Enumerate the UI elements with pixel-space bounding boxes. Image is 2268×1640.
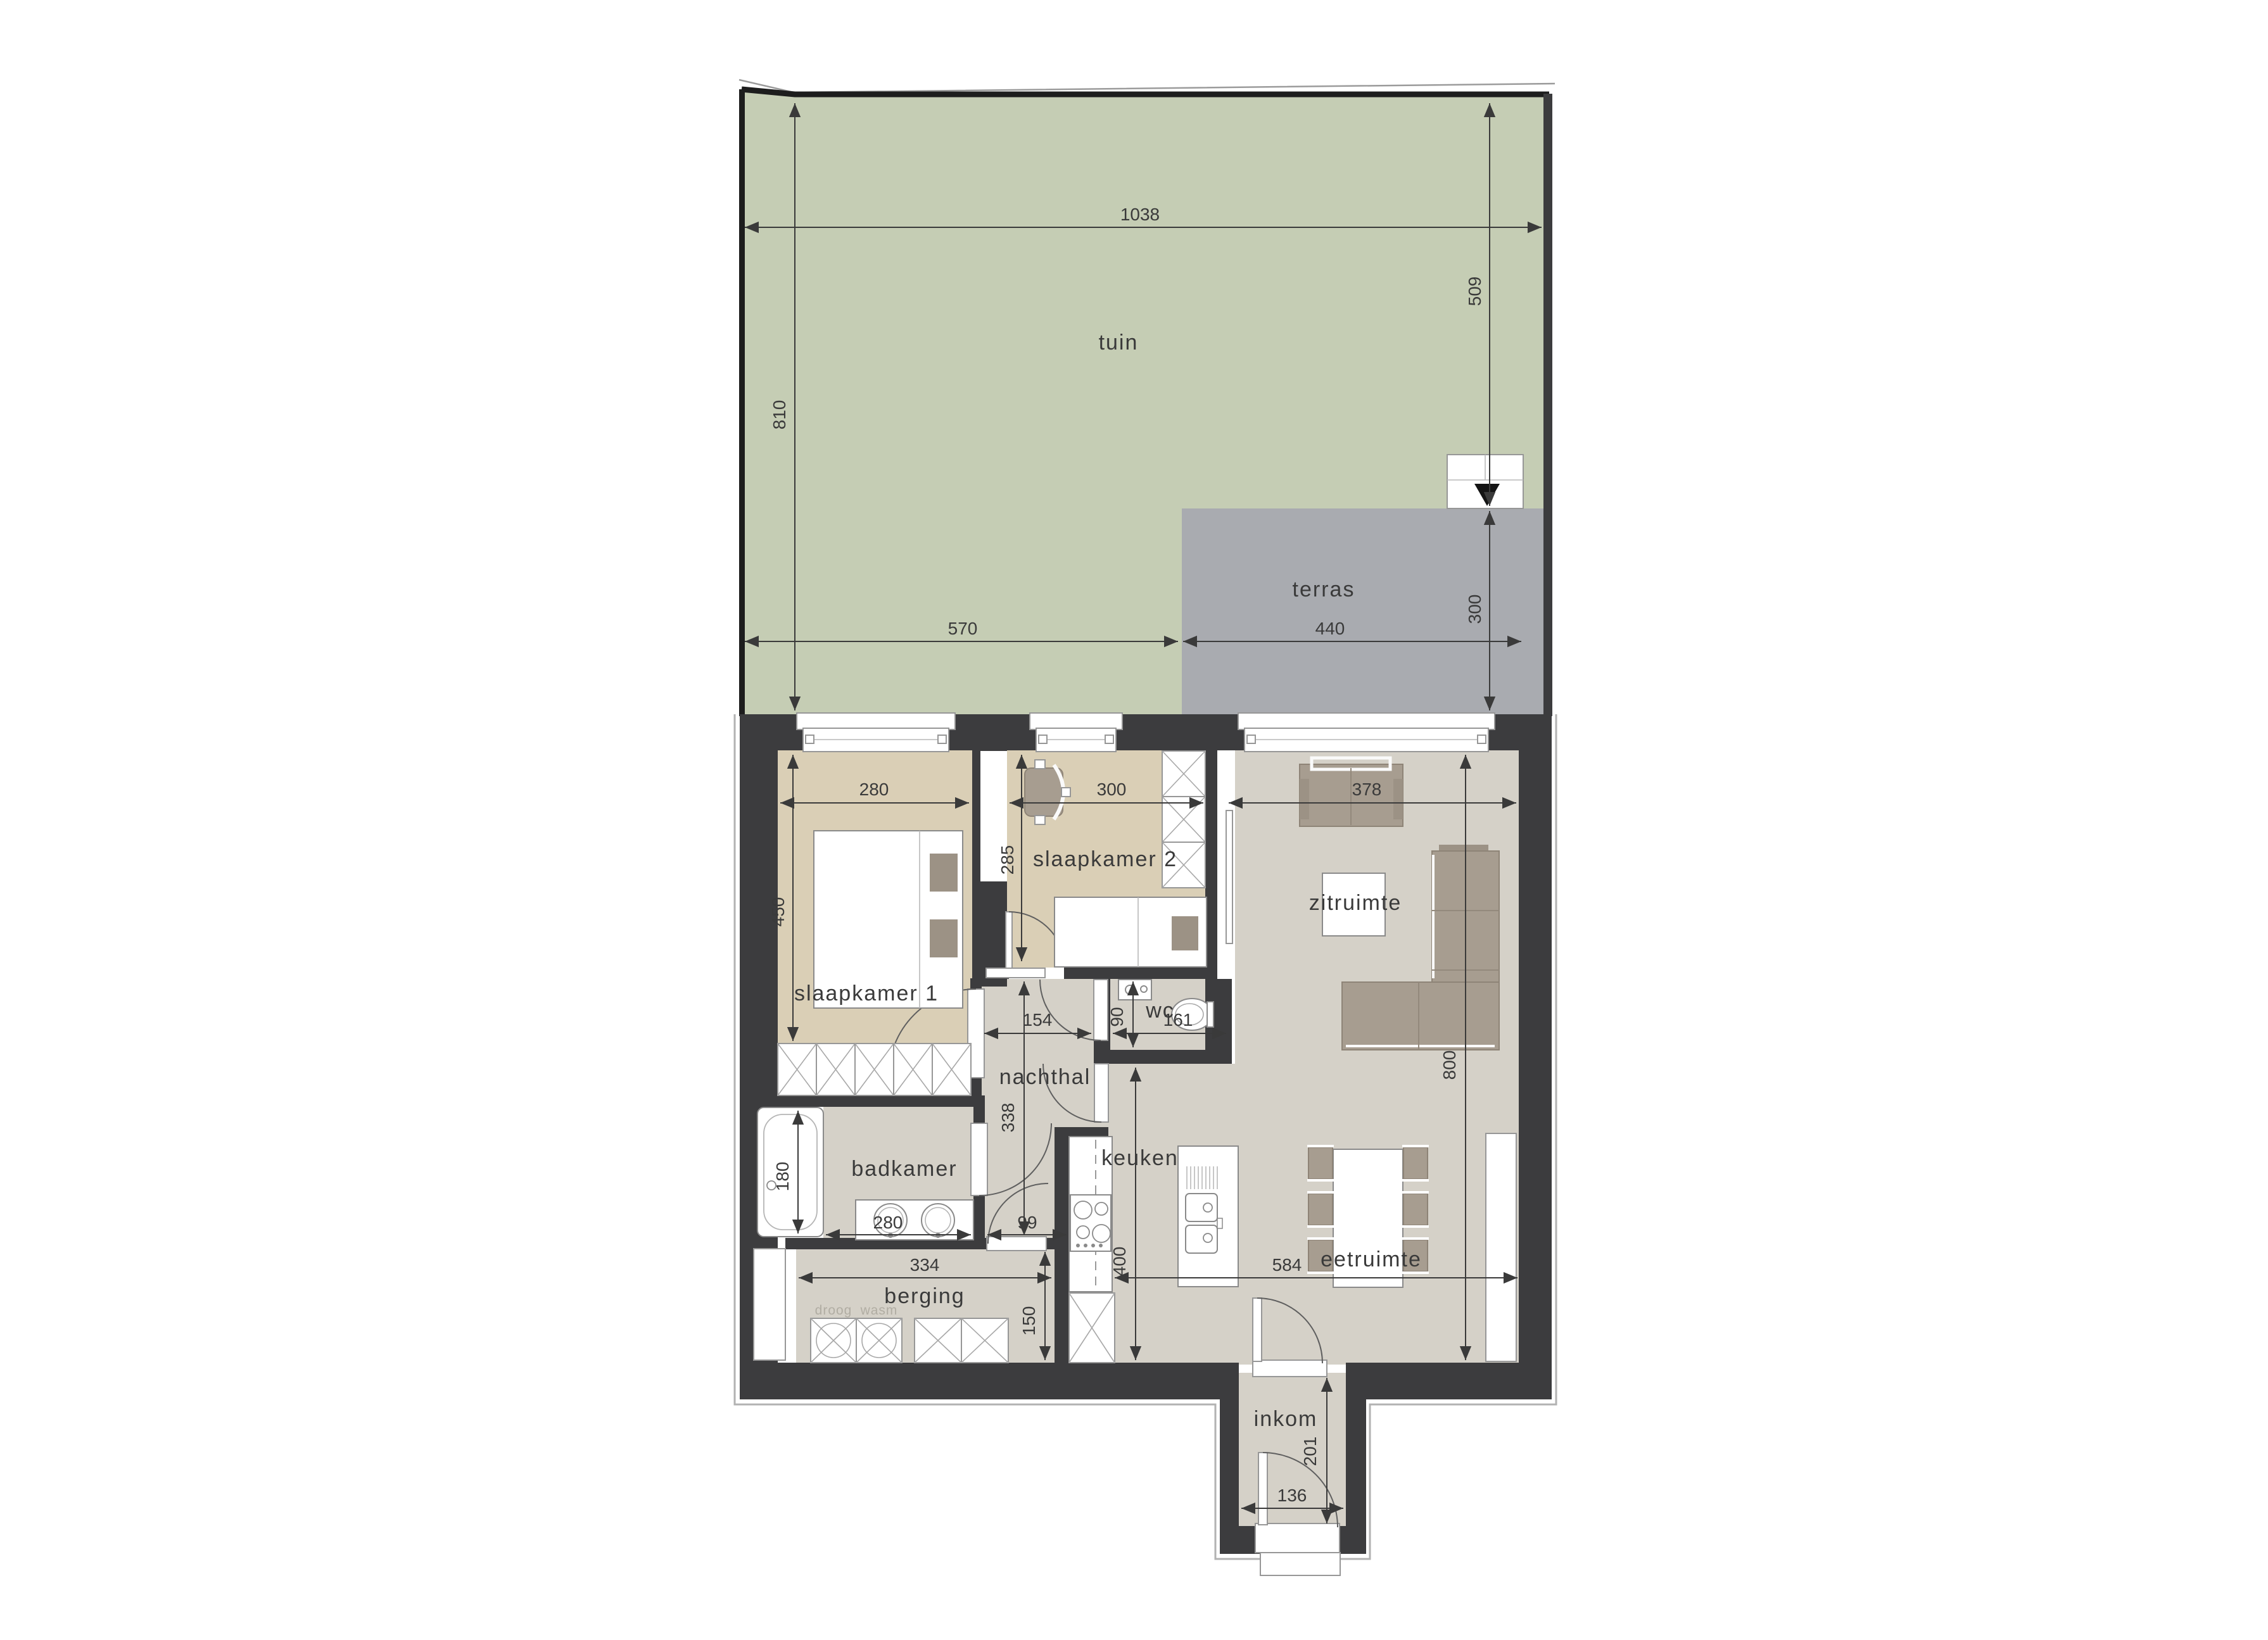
window-post — [1478, 735, 1486, 743]
window-post — [1247, 735, 1255, 743]
bedroom2-door-leaf — [1006, 912, 1012, 970]
entry-inner-door-opening — [1253, 1360, 1327, 1377]
window-post — [1039, 735, 1047, 743]
dim-text-hall-width: 154 — [1023, 1010, 1053, 1030]
entrance-step — [1260, 1553, 1340, 1575]
corner-sofa-short-side — [1342, 982, 1499, 1050]
toilet-tank — [1207, 1002, 1213, 1027]
dim-text-garden-depth-left: 810 — [770, 400, 789, 430]
kitchen-tall-cabinet — [1069, 1293, 1115, 1363]
wall-entry-right — [1346, 1363, 1366, 1554]
dim-text-kitchen-depth: 400 — [1110, 1247, 1129, 1277]
garden-stairs — [1447, 455, 1523, 508]
wall-bedroom1-bottom — [778, 1095, 985, 1107]
label-kitchen: keuken — [1101, 1146, 1179, 1170]
desk-leg — [1061, 788, 1070, 797]
window-outer-sill — [1030, 713, 1122, 729]
front-door-leaf — [1258, 1453, 1267, 1525]
dim-text-bath-width: 280 — [873, 1213, 903, 1232]
label-entry: inkom — [1254, 1407, 1318, 1431]
hall-slider-panel — [986, 968, 1045, 978]
label-garden: tuin — [1099, 331, 1139, 355]
wall-entry-left — [1220, 1363, 1239, 1554]
label-dryer: droog — [815, 1303, 852, 1318]
label-bathroom: badkamer — [851, 1157, 957, 1181]
label-washer: wasm — [860, 1303, 898, 1318]
window-post — [1105, 735, 1113, 743]
storage-door-opening — [987, 1237, 1046, 1251]
dim-text-garden-left-width: 570 — [948, 619, 978, 638]
wc-door-leaf — [1094, 980, 1108, 1040]
dim-text-dining-width: 584 — [1272, 1255, 1302, 1275]
dryer-box — [811, 1318, 856, 1363]
sofa-armrest — [1300, 779, 1309, 819]
bed-pillow — [930, 919, 958, 957]
bedroom1-wardrobe — [778, 1044, 971, 1095]
window-post — [806, 735, 814, 743]
dim-text-bedroom2-width: 300 — [1097, 779, 1127, 799]
sliding-door-panel — [1226, 811, 1232, 943]
dim-text-entry-width: 136 — [1277, 1485, 1307, 1505]
front-door-frame — [1255, 1523, 1340, 1553]
window-outer-sill — [797, 713, 955, 729]
dim-text-bedroom2-depth: 285 — [998, 845, 1017, 875]
wall-kitchen-back — [1055, 1140, 1069, 1363]
knob-icon — [1076, 1244, 1080, 1247]
bed-pillow — [930, 854, 958, 892]
storage-cabinet — [915, 1318, 1008, 1363]
bed-pillow — [1172, 916, 1198, 950]
wall-cabinet — [1486, 1133, 1516, 1361]
dim-text-wc-width: 161 — [1163, 1010, 1193, 1030]
dim-text-garden-depth-right: 509 — [1465, 277, 1485, 306]
desk-leg — [1035, 816, 1045, 824]
label-living: zitruimte — [1309, 891, 1402, 915]
sofa-armrest — [1393, 779, 1403, 819]
dim-text-storage-depth: 150 — [1019, 1306, 1039, 1336]
dim-text-garden-width: 1038 — [1120, 205, 1160, 224]
dim-text-terrace-width: 440 — [1315, 619, 1345, 638]
dim-text-terrace-depth: 300 — [1465, 595, 1485, 624]
label-terrace: terras — [1293, 577, 1355, 602]
knob-icon — [1099, 1244, 1103, 1247]
dim-text-hall-length: 338 — [998, 1103, 1018, 1133]
window-post — [938, 735, 946, 743]
wall-bottom-left — [740, 1363, 1220, 1399]
dim-text-bedroom1-depth: 450 — [768, 897, 788, 927]
dim-text-bathtub-length: 180 — [773, 1162, 792, 1192]
bathroom-door-leaf — [971, 1123, 987, 1195]
label-dining: eetruimte — [1321, 1247, 1422, 1271]
site-boundary-line — [739, 80, 1555, 92]
dim-text-entry-depth: 201 — [1300, 1437, 1320, 1467]
dim-text-living-width: 378 — [1352, 779, 1382, 799]
kitchen-dining-floor — [1069, 1064, 1520, 1365]
kitchen-door-leaf — [1094, 1064, 1108, 1122]
label-bedroom2: slaapkamer 2 — [1033, 847, 1177, 871]
floor-plan-drawing: tuin terras slaapkamer 1 slaapkamer 2 zi… — [0, 0, 2268, 1640]
window-outer-sill — [1238, 713, 1495, 729]
garden-right-border — [1543, 94, 1552, 716]
wall-bottom-right — [1346, 1363, 1552, 1399]
left-wall-duct-niche — [754, 1249, 785, 1360]
floor-plan-page: tuin terras slaapkamer 1 slaapkamer 2 zi… — [0, 0, 2268, 1640]
washer-box — [856, 1318, 902, 1363]
vanity-sink — [922, 1204, 954, 1237]
window-bedroom2 — [1030, 713, 1122, 752]
desk-leg — [1035, 760, 1045, 769]
wall-right — [1519, 714, 1552, 1399]
window-living-sliding-door — [1238, 713, 1495, 752]
dim-text-passage-width: 99 — [1017, 1213, 1037, 1232]
wc-sink-faucet — [1141, 986, 1147, 992]
dim-text-wc-depth: 90 — [1107, 1007, 1127, 1026]
entry-floor — [1239, 1373, 1346, 1530]
dim-text-storage-width: 334 — [910, 1255, 940, 1275]
wall-wc-bottom — [1094, 1050, 1232, 1064]
entry-inner-door-leaf — [1253, 1298, 1262, 1361]
window-bedroom1 — [797, 713, 955, 752]
dim-text-bedroom1-width: 280 — [859, 779, 889, 799]
label-bedroom1: slaapkamer 1 — [794, 981, 939, 1006]
dim-text-living-depth: 800 — [1440, 1050, 1459, 1080]
knob-icon — [1084, 1244, 1087, 1247]
garden-left-border — [739, 89, 745, 716]
label-hall: nachthal — [999, 1065, 1091, 1089]
garden-top-border — [742, 89, 1549, 94]
knob-icon — [1091, 1244, 1095, 1247]
desk-chair — [1025, 768, 1063, 816]
